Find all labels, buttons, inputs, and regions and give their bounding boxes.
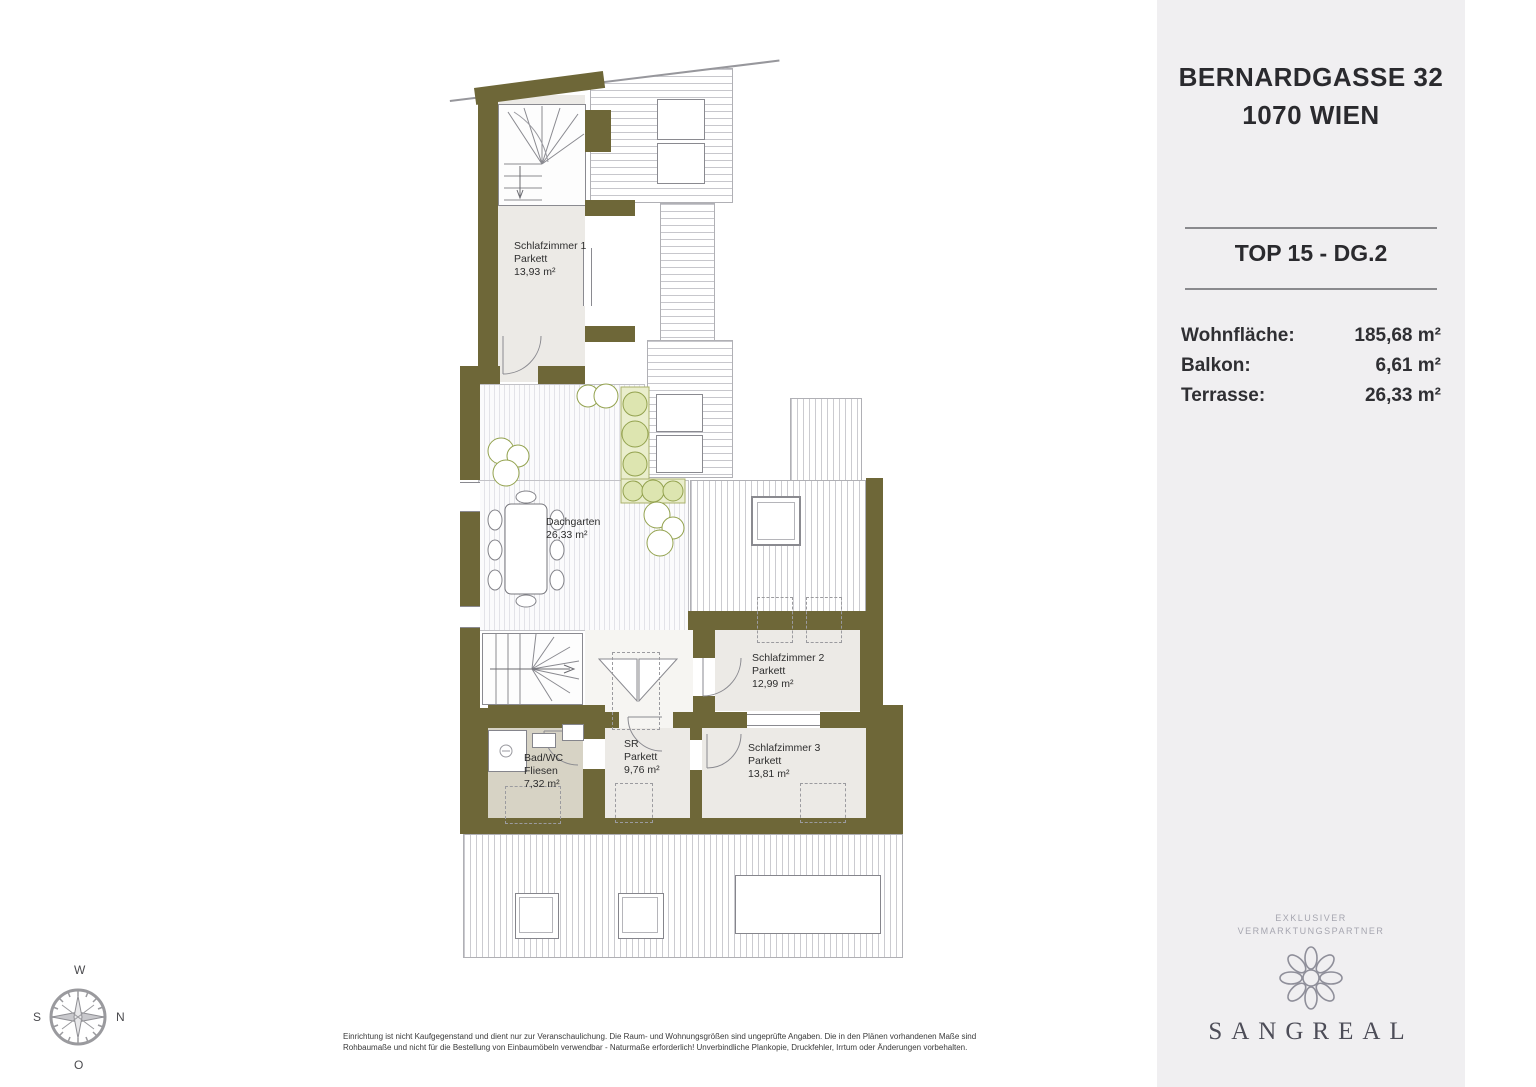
compass-o: O	[74, 1058, 83, 1072]
dashed-outline	[505, 786, 561, 824]
dashed-outline	[615, 783, 653, 823]
disclaimer-line1: Einrichtung ist nicht Kaufgegenstand und…	[343, 1032, 1005, 1043]
dining-set	[484, 490, 568, 608]
sink	[532, 733, 556, 748]
skylight-mid-lower	[656, 435, 703, 473]
wall-segment	[585, 326, 635, 342]
staircase-upper	[498, 104, 586, 206]
shower-drain-icon	[497, 742, 515, 760]
wall-segment	[693, 630, 715, 658]
area-row-terrasse: Terrasse: 26,33 m²	[1181, 385, 1441, 407]
label-schlafzimmer2: Schlafzimmer 2Parkett12,99 m²	[752, 652, 824, 691]
skylight-top-upper	[657, 99, 705, 140]
wall-segment	[478, 96, 498, 382]
sangreal-rosette-icon	[1277, 944, 1345, 1012]
dashed-outline	[806, 597, 842, 643]
info-panel: BERNARDGASSE 32 1070 WIEN TOP 15 - DG.2 …	[1157, 0, 1465, 1087]
skylight-top-lower	[657, 143, 705, 184]
divider	[1185, 288, 1437, 290]
planter-vertical	[620, 386, 650, 482]
area-row-wohnflaeche: Wohnfläche: 185,68 m²	[1181, 325, 1441, 347]
wall-segment	[866, 705, 903, 823]
dashed-outline	[612, 652, 660, 730]
label-sr: SRParkett9,76 m²	[624, 738, 660, 777]
roof-dormer-strip	[660, 203, 715, 342]
wall-segment	[460, 382, 480, 480]
wall-segment	[860, 630, 883, 712]
wall-segment	[583, 769, 605, 822]
disclaimer-line2: Rohbaumaße und nicht für die Bestellung …	[343, 1043, 1005, 1054]
window-left-1	[460, 482, 480, 512]
door-schlafzimmer2	[700, 656, 744, 700]
window-schlafzimmer2-3	[747, 714, 820, 726]
wall-segment	[460, 628, 480, 708]
area-label: Wohnfläche:	[1181, 325, 1295, 346]
wall-segment	[673, 712, 747, 728]
area-label: Balkon:	[1181, 355, 1251, 376]
plant-2	[485, 436, 535, 490]
area-row-balkon: Balkon: 6,61 m²	[1181, 355, 1441, 377]
compass-w: W	[74, 963, 86, 977]
wall-segment	[690, 728, 702, 740]
wall-segment	[690, 770, 702, 822]
brand-wordmark: SANGREAL	[1157, 1018, 1465, 1046]
wall-segment	[460, 708, 488, 834]
toilet	[562, 724, 584, 741]
plant-3	[640, 500, 688, 560]
wall-segment	[583, 705, 605, 739]
wall-segment	[866, 478, 883, 613]
partner-tagline: EXKLUSIVER VERMARKTUNGSPARTNER	[1157, 912, 1465, 938]
compass-s: S	[33, 1010, 41, 1024]
roof-window-1	[515, 893, 559, 939]
wall-segment	[585, 200, 635, 216]
area-value: 6,61 m²	[1376, 355, 1441, 377]
compass-n: N	[116, 1010, 125, 1024]
floor-plan: Schlafzimmer 1Parkett13,93 m² Dachgarten…	[0, 0, 1087, 1087]
compass-rose: W N S O	[28, 960, 130, 1072]
wall-segment	[820, 712, 868, 728]
skylight-right	[751, 496, 801, 546]
address-line1: BERNARDGASSE 32	[1157, 62, 1465, 93]
area-value: 185,68 m²	[1354, 325, 1441, 347]
page: Schlafzimmer 1Parkett13,93 m² Dachgarten…	[0, 0, 1536, 1087]
plant-1	[575, 382, 621, 410]
dashed-outline	[757, 597, 793, 643]
area-value: 26,33 m²	[1365, 385, 1441, 407]
label-badwc: Bad/WCFliesen7,32 m²	[524, 752, 563, 791]
skylight-mid-upper	[656, 394, 703, 432]
label-dachgarten: Dachgarten26,33 m²	[546, 516, 600, 542]
unit-title: TOP 15 - DG.2	[1157, 240, 1465, 267]
staircase-lower	[482, 633, 583, 705]
wall-segment	[460, 512, 480, 606]
roof-window-2	[618, 893, 664, 939]
dashed-outline	[800, 783, 846, 823]
label-schlafzimmer1: Schlafzimmer 1Parkett13,93 m²	[514, 240, 586, 279]
wall-segment	[585, 110, 611, 152]
window-left-2	[460, 606, 480, 628]
divider	[1185, 227, 1437, 229]
door-schlafzimmer3	[704, 732, 744, 772]
wall-segment	[538, 366, 585, 384]
disclaimer: Einrichtung ist nicht Kaufgegenstand und…	[343, 1032, 1005, 1053]
roof-right-strip	[790, 398, 862, 482]
address-line2: 1070 WIEN	[1157, 100, 1465, 131]
roof-window-wide	[735, 875, 881, 934]
label-schlafzimmer3: Schlafzimmer 3Parkett13,81 m²	[748, 742, 820, 781]
area-label: Terrasse:	[1181, 385, 1265, 406]
door-schlafzimmer1	[500, 334, 544, 378]
